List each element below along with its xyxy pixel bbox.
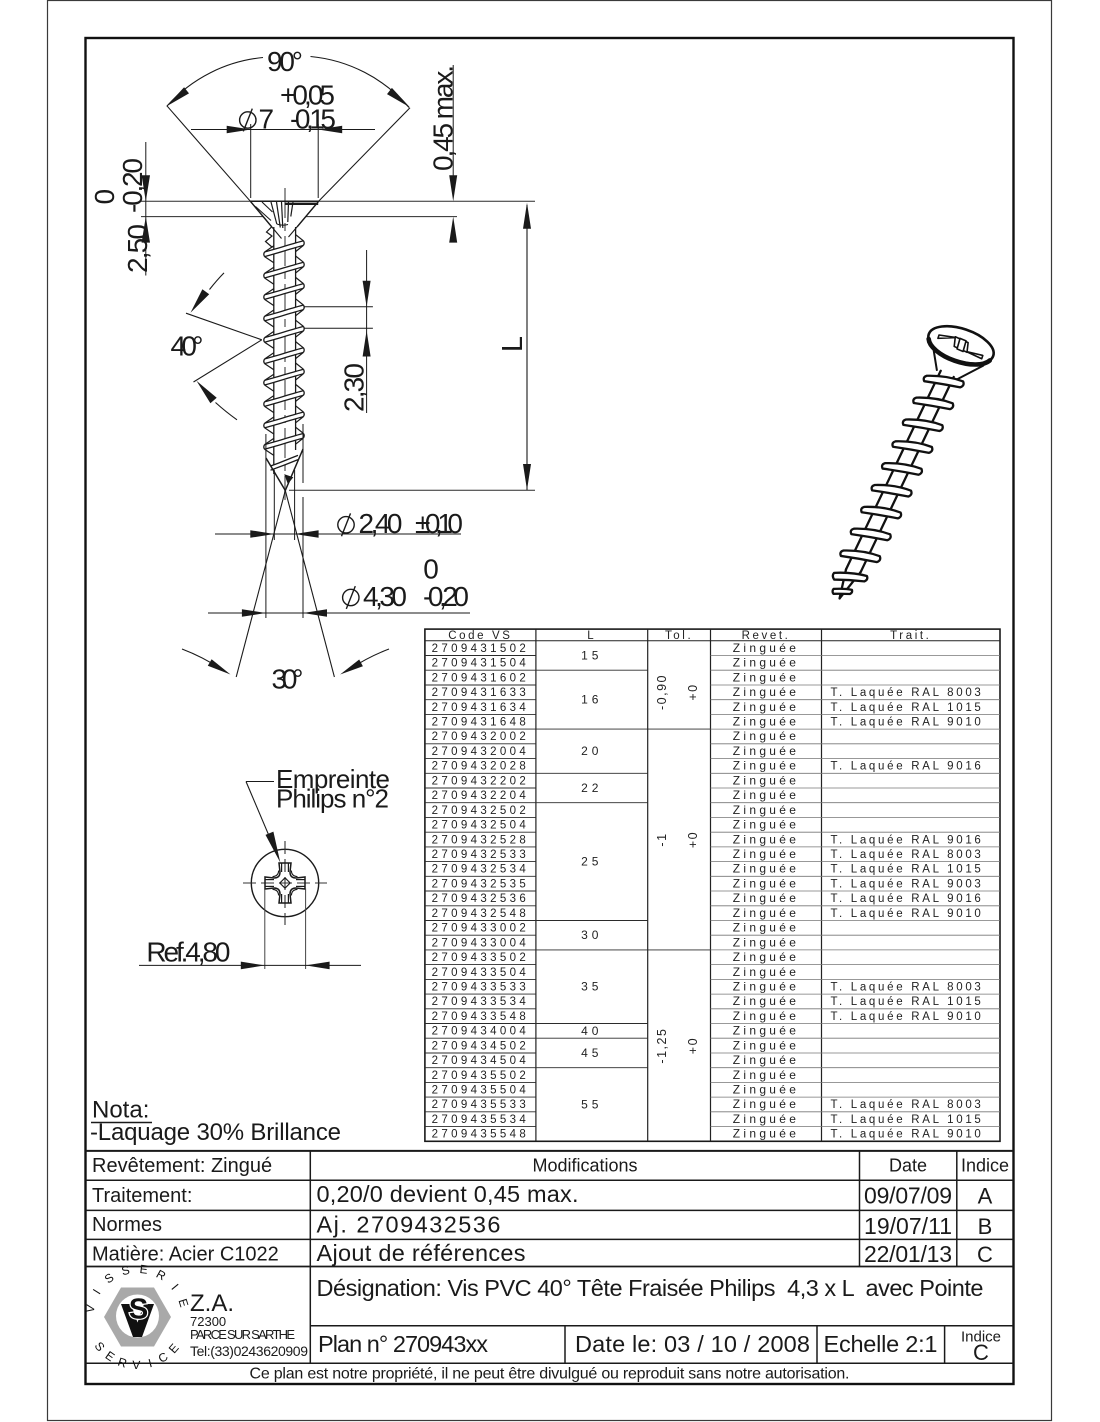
svg-text:Zinguée: Zinguée <box>733 832 799 846</box>
svg-text:0,20/0 devient 0,45 max.: 0,20/0 devient 0,45 max. <box>317 1181 579 1207</box>
svg-text:2709432535: 2709432535 <box>432 878 529 890</box>
svg-text:2709432502: 2709432502 <box>432 805 529 817</box>
svg-text:2709434504: 2709434504 <box>432 1055 529 1067</box>
svg-text:Tel:(33)0243620909: Tel:(33)0243620909 <box>190 1343 308 1359</box>
svg-text:T. Laquée RAL 8003: T. Laquée RAL 8003 <box>831 849 984 861</box>
svg-text:Zinguée: Zinguée <box>733 1097 799 1111</box>
svg-text:Zinguée: Zinguée <box>733 1038 799 1052</box>
svg-text:2,50: 2,50 <box>122 224 153 273</box>
svg-text:40: 40 <box>581 1024 602 1038</box>
svg-text:2709432548: 2709432548 <box>432 908 529 920</box>
svg-text:30: 30 <box>581 928 602 942</box>
svg-text:Zinguée: Zinguée <box>733 965 799 979</box>
svg-text:A: A <box>978 1184 993 1209</box>
svg-text:-0,20: -0,20 <box>423 581 469 612</box>
svg-text:Zinguée: Zinguée <box>733 921 799 935</box>
svg-text:-Laquage 30% Brillance: -Laquage 30% Brillance <box>90 1119 341 1146</box>
svg-text:Zinguée: Zinguée <box>733 876 799 890</box>
svg-text:2709432534: 2709432534 <box>432 864 529 876</box>
svg-text:2709432528: 2709432528 <box>432 834 529 846</box>
svg-text:Trait.: Trait. <box>890 630 931 642</box>
svg-text:T. Laquée RAL 9016: T. Laquée RAL 9016 <box>831 834 984 846</box>
svg-text:Zinguée: Zinguée <box>733 906 799 920</box>
svg-text:Zinguée: Zinguée <box>733 1053 799 1067</box>
svg-text:-0,20: -0,20 <box>117 158 148 213</box>
svg-text:T. Laquée RAL 1015: T. Laquée RAL 1015 <box>831 864 984 876</box>
svg-text:E: E <box>139 1262 149 1277</box>
svg-text:Zinguée: Zinguée <box>733 773 799 787</box>
svg-text:2709432002: 2709432002 <box>432 731 529 743</box>
svg-text:Tol.: Tol. <box>665 630 693 642</box>
svg-text:Zinguée: Zinguée <box>733 1127 799 1141</box>
svg-text:2709432504: 2709432504 <box>432 820 529 832</box>
svg-text:2709433502: 2709433502 <box>432 952 529 964</box>
svg-text:Normes: Normes <box>92 1214 162 1236</box>
svg-text:Ce plan est notre propriété, i: Ce plan est notre propriété, il ne peut … <box>250 1366 850 1383</box>
svg-text:Ajout de références: Ajout de références <box>317 1240 526 1266</box>
svg-text:2709434502: 2709434502 <box>432 1040 529 1052</box>
svg-text:45: 45 <box>581 1046 602 1060</box>
svg-text:L: L <box>497 336 529 352</box>
svg-text:2709435533: 2709435533 <box>432 1099 529 1111</box>
svg-text:Zinguée: Zinguée <box>733 685 799 699</box>
svg-text:0: 0 <box>423 554 439 585</box>
svg-text:22: 22 <box>581 781 602 795</box>
svg-text:2709432204: 2709432204 <box>432 790 529 802</box>
svg-text:+0: +0 <box>686 683 700 700</box>
svg-text:2709435534: 2709435534 <box>432 1114 529 1126</box>
svg-text:2709433004: 2709433004 <box>432 937 529 949</box>
svg-text:+0: +0 <box>686 1037 700 1054</box>
svg-text:Date le: 03 / 10 / 2008: Date le: 03 / 10 / 2008 <box>575 1331 810 1357</box>
svg-text:T. Laquée RAL 8003: T. Laquée RAL 8003 <box>831 982 984 994</box>
svg-text:2709431602: 2709431602 <box>432 672 529 684</box>
svg-text:-0,15: -0,15 <box>290 104 336 135</box>
svg-text:30°: 30° <box>272 664 304 695</box>
svg-text:2709431633: 2709431633 <box>432 687 529 699</box>
svg-text:Désignation: Vis PVC 40° Tête: Désignation: Vis PVC 40° Tête Fraisée Ph… <box>317 1275 984 1301</box>
svg-text:2709432202: 2709432202 <box>432 775 529 787</box>
svg-text:2,40: 2,40 <box>359 508 403 539</box>
svg-text:2709433548: 2709433548 <box>432 1011 529 1023</box>
svg-text:T. Laquée RAL 9010: T. Laquée RAL 9010 <box>831 908 984 920</box>
svg-text:2709432004: 2709432004 <box>432 746 529 758</box>
svg-text:2709431648: 2709431648 <box>432 717 529 729</box>
svg-text:Modifications: Modifications <box>532 1156 637 1176</box>
svg-text:2709432533: 2709432533 <box>432 849 529 861</box>
svg-text:55: 55 <box>581 1098 602 1112</box>
svg-text:-1,25: -1,25 <box>655 1028 669 1064</box>
svg-text:2709433504: 2709433504 <box>432 967 529 979</box>
svg-text:Revêtement: Zingué: Revêtement: Zingué <box>92 1155 272 1177</box>
svg-text:S: S <box>129 1294 148 1326</box>
svg-text:T. Laquée RAL 8003: T. Laquée RAL 8003 <box>831 687 984 699</box>
svg-text:4,30: 4,30 <box>363 581 407 612</box>
svg-text:Zinguée: Zinguée <box>733 950 799 964</box>
svg-text:Ref.4,80: Ref.4,80 <box>146 937 230 968</box>
svg-text:Zinguée: Zinguée <box>733 1024 799 1038</box>
svg-text:2,30: 2,30 <box>339 363 370 412</box>
svg-text:Zinguée: Zinguée <box>733 891 799 905</box>
svg-text:2709434004: 2709434004 <box>432 1026 529 1038</box>
svg-text:2709432536: 2709432536 <box>432 893 529 905</box>
svg-text:C: C <box>977 1242 993 1267</box>
svg-text:2709435548: 2709435548 <box>432 1129 529 1141</box>
svg-text:±0,10: ±0,10 <box>415 508 463 539</box>
svg-text:T. Laquée RAL 9010: T. Laquée RAL 9010 <box>831 717 984 729</box>
svg-text:2709433534: 2709433534 <box>432 996 529 1008</box>
svg-text:0,45 max.: 0,45 max. <box>428 65 459 171</box>
svg-text:Zinguée: Zinguée <box>733 641 799 655</box>
svg-text:Zinguée: Zinguée <box>733 1068 799 1082</box>
svg-text:Zinguée: Zinguée <box>733 700 799 714</box>
svg-text:2709431504: 2709431504 <box>432 658 529 670</box>
svg-text:PARCE SUR SARTHE: PARCE SUR SARTHE <box>190 1327 295 1342</box>
svg-text:Z.A.: Z.A. <box>190 1290 234 1317</box>
svg-text:T. Laquée RAL 9010: T. Laquée RAL 9010 <box>831 1129 984 1141</box>
svg-text:2709435504: 2709435504 <box>432 1085 529 1097</box>
svg-text:T. Laquée RAL 9016: T. Laquée RAL 9016 <box>831 893 984 905</box>
svg-text:T. Laquée RAL 9003: T. Laquée RAL 9003 <box>831 878 984 890</box>
svg-text:16: 16 <box>581 693 602 707</box>
svg-text:2709433002: 2709433002 <box>432 923 529 935</box>
svg-text:T. Laquée RAL 9016: T. Laquée RAL 9016 <box>831 761 984 773</box>
svg-text:Philips n°2: Philips n°2 <box>276 784 389 814</box>
svg-text:T. Laquée RAL 9010: T. Laquée RAL 9010 <box>831 1011 984 1023</box>
svg-text:Zinguée: Zinguée <box>733 980 799 994</box>
svg-text:T. Laquée RAL 1015: T. Laquée RAL 1015 <box>831 996 984 1008</box>
svg-text:Date: Date <box>889 1156 927 1176</box>
svg-text:Plan n° 270943xx: Plan n° 270943xx <box>318 1331 488 1357</box>
svg-text:25: 25 <box>581 855 602 869</box>
svg-text:Echelle 2:1: Echelle 2:1 <box>824 1331 938 1357</box>
svg-text:L: L <box>587 630 596 642</box>
svg-text:Zinguée: Zinguée <box>733 729 799 743</box>
svg-text:Zinguée: Zinguée <box>733 1009 799 1023</box>
svg-text:Traitement:: Traitement: <box>92 1185 192 1207</box>
svg-text:0: 0 <box>89 189 120 205</box>
svg-text:Zinguée: Zinguée <box>733 759 799 773</box>
svg-text:35: 35 <box>581 980 602 994</box>
svg-text:Zinguée: Zinguée <box>733 847 799 861</box>
svg-text:19/07/11: 19/07/11 <box>864 1213 952 1239</box>
svg-text:09/07/09: 09/07/09 <box>864 1183 952 1209</box>
svg-text:+0: +0 <box>686 831 700 848</box>
svg-text:C: C <box>973 1340 989 1365</box>
svg-text:Zinguée: Zinguée <box>733 803 799 817</box>
svg-text:Zinguée: Zinguée <box>733 994 799 1008</box>
svg-text:Matière: Acier C1022: Matière: Acier C1022 <box>92 1244 279 1266</box>
svg-text:V: V <box>132 1358 140 1372</box>
svg-text:Zinguée: Zinguée <box>733 1083 799 1097</box>
svg-text:Zinguée: Zinguée <box>733 744 799 758</box>
svg-text:22/01/13: 22/01/13 <box>864 1241 952 1267</box>
svg-text:2709431634: 2709431634 <box>432 702 529 714</box>
svg-text:-1: -1 <box>655 832 669 846</box>
svg-text:90°: 90° <box>267 46 303 77</box>
svg-text:Zinguée: Zinguée <box>733 788 799 802</box>
svg-text:Zinguée: Zinguée <box>733 1112 799 1126</box>
svg-text:15: 15 <box>581 649 602 663</box>
svg-text:7: 7 <box>259 104 275 135</box>
svg-text:Zinguée: Zinguée <box>733 670 799 684</box>
svg-text:Zinguée: Zinguée <box>733 818 799 832</box>
svg-text:2709431502: 2709431502 <box>432 643 529 655</box>
svg-text:Zinguée: Zinguée <box>733 656 799 670</box>
svg-text:T. Laquée RAL 8003: T. Laquée RAL 8003 <box>831 1099 984 1111</box>
svg-text:Zinguée: Zinguée <box>733 935 799 949</box>
svg-text:2709433533: 2709433533 <box>432 982 529 994</box>
svg-text:2709435502: 2709435502 <box>432 1070 529 1082</box>
svg-text:40°: 40° <box>171 331 204 362</box>
svg-text:20: 20 <box>581 744 602 758</box>
svg-text:Indice: Indice <box>961 1156 1009 1176</box>
svg-text:Zinguée: Zinguée <box>733 862 799 876</box>
svg-text:T. Laquée RAL 1015: T. Laquée RAL 1015 <box>831 1114 984 1126</box>
svg-text:T. Laquée RAL 1015: T. Laquée RAL 1015 <box>831 702 984 714</box>
svg-text:2709432028: 2709432028 <box>432 761 529 773</box>
svg-text:-0,90: -0,90 <box>655 674 669 710</box>
svg-text:Code VS: Code VS <box>448 630 512 642</box>
svg-text:Aj. 2709432536: Aj. 2709432536 <box>317 1212 501 1238</box>
svg-text:Zinguée: Zinguée <box>733 715 799 729</box>
svg-text:B: B <box>978 1214 993 1239</box>
